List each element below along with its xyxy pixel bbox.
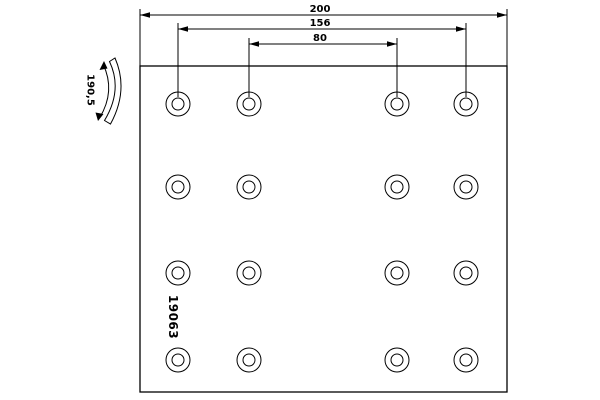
lining-profile-side-view: 190,5 bbox=[85, 58, 122, 124]
dim-arrow-right-icon bbox=[497, 12, 507, 18]
dim-arrow-left-icon bbox=[178, 26, 188, 32]
lining-plate bbox=[140, 66, 507, 392]
profile-dimension-arc bbox=[100, 64, 109, 118]
dim-arrow-left-icon bbox=[140, 12, 150, 18]
part-number-label: 19063 bbox=[166, 295, 180, 339]
dim-label-outer-hole-spacing: 156 bbox=[310, 18, 331, 29]
drawing-canvas: 19063 200 156 80 bbox=[0, 0, 600, 400]
dim-arrow-left-icon bbox=[249, 41, 259, 47]
technical-drawing: 19063 200 156 80 bbox=[0, 0, 600, 400]
dim-arrow-right-icon bbox=[387, 41, 397, 47]
dim-label-profile-arc-width: 190,5 bbox=[85, 74, 96, 106]
profile-arrow-bottom-icon bbox=[96, 113, 104, 122]
dim-arrow-right-icon bbox=[456, 26, 466, 32]
dim-label-overall-width: 200 bbox=[310, 4, 331, 15]
dim-label-inner-hole-spacing: 80 bbox=[313, 33, 327, 44]
profile-arrow-top-icon bbox=[100, 61, 108, 70]
